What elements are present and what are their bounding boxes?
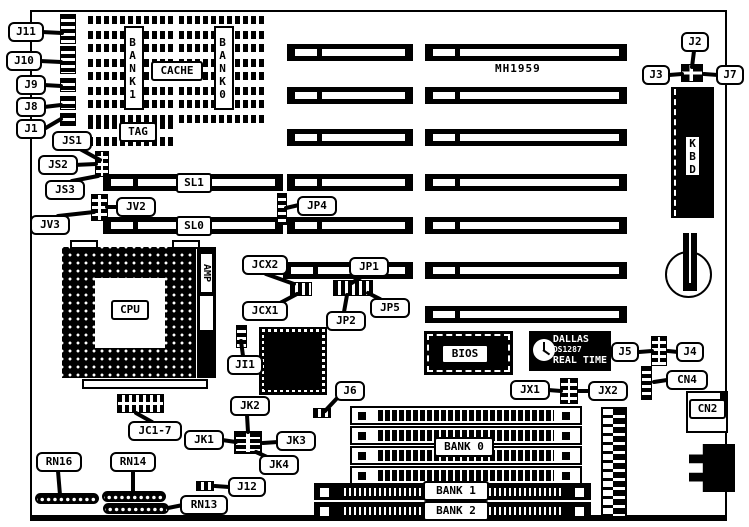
callout-js1: JS1 <box>52 131 92 151</box>
callout-jp4: JP4 <box>297 196 337 216</box>
callout-j10: J10 <box>6 51 42 71</box>
callout-jx2: JX2 <box>588 381 628 401</box>
callout-rn13: RN13 <box>180 495 228 515</box>
bios-label: BIOS <box>441 344 489 364</box>
callout-j3: J3 <box>642 65 670 85</box>
cn2-label: CN2 <box>689 399 726 419</box>
callout-jk4: JK4 <box>259 455 299 475</box>
callout-j7: J7 <box>716 65 744 85</box>
bank1-label: BANK 1 <box>423 481 489 501</box>
bank2-label: BANK 2 <box>423 501 489 521</box>
callout-cn4: CN4 <box>666 370 708 390</box>
callout-j6: J6 <box>335 381 365 401</box>
callout-jv2: JV2 <box>116 197 156 217</box>
callout-jcx1: JCX1 <box>242 301 288 321</box>
callout-jp5: JP5 <box>370 298 410 318</box>
callout-jcx2: JCX2 <box>242 255 288 275</box>
callout-js2: JS2 <box>38 155 78 175</box>
callout-j2: J2 <box>681 32 709 52</box>
tag-label: TAG <box>119 122 157 142</box>
callout-ji1: JI1 <box>227 355 263 375</box>
cache-bank0-label: BANK0 <box>214 26 234 110</box>
callout-jk2: JK2 <box>230 396 270 416</box>
callout-jc1-7: JC1-7 <box>128 421 182 441</box>
callout-j1: J1 <box>16 119 46 139</box>
callout-jx1: JX1 <box>510 380 550 400</box>
callout-rn16: RN16 <box>36 452 82 472</box>
callout-jp1: JP1 <box>349 257 389 277</box>
callout-jp2: JP2 <box>326 311 366 331</box>
callout-j5: J5 <box>611 342 639 362</box>
sl1-label: SL1 <box>176 173 212 193</box>
bank0-label: BANK 0 <box>434 437 494 457</box>
callout-j4: J4 <box>676 342 704 362</box>
callout-jv3: JV3 <box>30 215 70 235</box>
callout-j11: J11 <box>8 22 44 42</box>
motherboard-diagram: BANK1 BANK0 CACHE TAG SL1 SL0 MH1959 CPU… <box>0 0 749 527</box>
sl0-label: SL0 <box>176 216 212 236</box>
cpu-label: CPU <box>111 300 149 320</box>
callout-j12: J12 <box>228 477 266 497</box>
kbd-label: KBD <box>684 135 701 177</box>
callout-jk1: JK1 <box>184 430 224 450</box>
cache-label: CACHE <box>151 61 203 81</box>
callout-rn14: RN14 <box>110 452 156 472</box>
callout-js3: JS3 <box>45 180 85 200</box>
callout-jk3: JK3 <box>276 431 316 451</box>
callout-j8: J8 <box>16 97 46 117</box>
callout-j9: J9 <box>16 75 46 95</box>
cache-bank1-label: BANK1 <box>124 26 144 110</box>
